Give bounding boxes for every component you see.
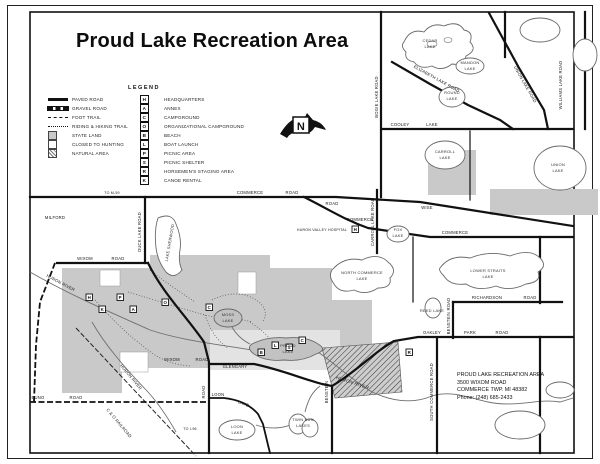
- legend-swatch-icon: [48, 140, 68, 149]
- legend-item-label: FOOT TRAIL: [72, 115, 101, 120]
- map-label: ROUND: [444, 90, 460, 95]
- svg-text:L: L: [274, 343, 277, 348]
- legend-item: CLOSED TO HUNTING: [48, 140, 128, 149]
- map-label: TO M-59: [104, 191, 120, 195]
- legend-item: L BOAT LAUNCH: [140, 140, 244, 149]
- legend-heading: LEGEND: [48, 85, 240, 91]
- map-label: REED LAKE: [420, 308, 444, 313]
- map-label: HURON VALLEY HOSPITAL: [297, 228, 347, 232]
- contact-line: PROUD LAKE RECREATION AREA: [457, 372, 544, 380]
- map-label: PARK: [464, 330, 476, 335]
- map-label: LAKES: [296, 423, 310, 428]
- legend-swatch-icon: [48, 107, 68, 110]
- map-label: CARROLL: [435, 149, 456, 154]
- legend-item-label: STATE LAND: [72, 133, 102, 138]
- map-label: COMMERCE: [442, 230, 469, 235]
- legend-line-items: PAVED ROAD GRAVEL ROAD FOOT TRAIL: [48, 95, 128, 185]
- legend-item: PAVED ROAD: [48, 95, 128, 104]
- facility-icon: P: [117, 294, 124, 301]
- facility-symbol-icon: C: [140, 113, 160, 122]
- svg-text:O: O: [163, 300, 167, 305]
- legend-swatch-icon: [48, 149, 68, 158]
- facility-icon: C: [299, 337, 306, 344]
- map-label: LAKE: [282, 349, 293, 354]
- svg-text:H: H: [354, 227, 357, 232]
- legend-swatch-icon: [48, 126, 68, 127]
- map-label: BENSTEIN ROAD: [446, 298, 451, 335]
- legend-item-label: HORSEMEN'S STAGING AREA: [164, 169, 234, 174]
- legend-item-label: PICNIC AREA: [164, 151, 195, 156]
- facility-icon: A: [130, 306, 137, 313]
- map-label: MILFORD: [45, 215, 65, 220]
- map-label: UNION: [551, 162, 565, 167]
- legend-swatch-icon: [48, 98, 68, 101]
- legend-item-label: ANNEX: [164, 106, 181, 111]
- legend-item: K CANOE RENTAL: [140, 176, 244, 185]
- legend-item-label: BEACH: [164, 133, 181, 138]
- map-label: LAKE: [392, 233, 403, 238]
- legend-item: H HEADQUARTERS: [140, 95, 244, 104]
- map-label: LAKE: [424, 44, 435, 49]
- contact-line: Phone: (248) 685-2433: [457, 395, 544, 403]
- map-label: BUNO: [32, 395, 45, 400]
- map-label: WIXOM: [77, 256, 93, 261]
- facility-icon: R: [406, 349, 413, 356]
- map-label: ROAD: [70, 395, 83, 400]
- map-label: RICHARDSON: [472, 295, 502, 300]
- map-label: WILLIAMS LAKE ROAD: [558, 61, 563, 110]
- legend-swatch-icon: [48, 117, 68, 118]
- map-label: LAKE: [439, 155, 450, 160]
- legend-item: FOOT TRAIL: [48, 113, 128, 122]
- map-label: ROAD: [201, 386, 206, 399]
- map-label: LAKE: [237, 399, 250, 408]
- legend-item-label: CLOSED TO HUNTING: [72, 142, 124, 147]
- map-label: ROAD: [524, 295, 537, 300]
- map-label: LAKE: [552, 168, 563, 173]
- legend-item-label: BOAT LAUNCH: [164, 142, 198, 147]
- facility-icon: C: [206, 304, 213, 311]
- map-label: OAKLEY: [423, 330, 441, 335]
- map-label: ROAD: [286, 190, 299, 195]
- facility-icon: B: [258, 349, 265, 356]
- facility-icon: L: [272, 342, 279, 349]
- contact-line: COMMERCE TWP. MI 48382: [457, 387, 544, 395]
- legend-item-label: HEADQUARTERS: [164, 97, 205, 102]
- map-label: LAKE: [426, 122, 438, 127]
- map-label: LAKE: [464, 66, 475, 71]
- map-label: MANDON: [461, 60, 480, 65]
- facility-icon: K: [99, 306, 106, 313]
- facility-symbol-icon: K: [140, 176, 160, 185]
- legend-item: R HORSEMEN'S STAGING AREA: [140, 167, 244, 176]
- map-label: MOSS: [222, 312, 235, 317]
- legend-item-label: NATURAL AREA: [72, 151, 109, 156]
- legend-item: C CAMPGROUND: [140, 113, 244, 122]
- legend-item: STATE LAND: [48, 131, 128, 140]
- map-label: TO I-96: [183, 427, 197, 431]
- legend: LEGEND PAVED ROAD GRAVEL ROAD: [48, 85, 240, 185]
- glengary-benstein-road: [209, 364, 332, 453]
- page-title: Proud Lake Recreation Area: [76, 30, 348, 53]
- map-label: LAKE: [356, 276, 367, 281]
- map-label: LOON: [231, 424, 243, 429]
- facility-symbol-icon: R: [140, 167, 160, 176]
- map-label: UNION LAKE ROAD: [513, 65, 538, 104]
- facility-symbol-icon: O: [140, 122, 160, 131]
- map-label: ROAD: [496, 330, 509, 335]
- legend-item: O ORGANIZATIONAL CAMPGROUND: [140, 122, 244, 131]
- facility-symbol-icon: B: [140, 131, 160, 140]
- natural-area-region: [322, 342, 402, 398]
- facility-symbol-icon: H: [140, 95, 160, 104]
- facility-icon: H: [86, 294, 93, 301]
- legend-item: B BEACH: [140, 131, 244, 140]
- legend-item-label: GRAVEL ROAD: [72, 106, 107, 111]
- map-label: WISE: [421, 205, 433, 210]
- map-label: LAKE: [222, 318, 233, 323]
- facility-icon: H: [352, 226, 359, 233]
- map-label: WIXOM: [164, 357, 180, 362]
- legend-item: NATURAL AREA: [48, 149, 128, 158]
- svg-text:B: B: [260, 350, 263, 355]
- contact-line: 3500 WIXOM ROAD: [457, 380, 544, 388]
- legend-item: GRAVEL ROAD: [48, 104, 128, 113]
- map-label: CARROLL LAKE ROAD: [370, 198, 375, 246]
- map-label: LAKE: [482, 274, 493, 279]
- map-label: SOUTH COMMERCE ROAD: [429, 363, 434, 421]
- legend-item: RIDING & HIKING TRAIL: [48, 122, 128, 131]
- legend-item-label: ORGANIZATIONAL CAMPGROUND: [164, 124, 244, 129]
- legend-item: A ANNEX: [140, 104, 244, 113]
- map-label: LAKE: [446, 96, 457, 101]
- legend-facility-items: H HEADQUARTERS A ANNEX C CAMPGROUND: [140, 95, 244, 185]
- legend-item-label: CANOE RENTAL: [164, 178, 202, 183]
- contact-block: PROUD LAKE RECREATION AREA3500 WIXOM ROA…: [457, 372, 544, 402]
- map-label: COMMERCE: [237, 190, 264, 195]
- map-label: TWIN SUN: [292, 417, 313, 422]
- north-arrow: N: [280, 113, 326, 138]
- map-label: LAKE: [231, 430, 242, 435]
- legend-item-label: CAMPGROUND: [164, 115, 200, 120]
- facility-symbol-icon: A: [140, 104, 160, 113]
- map-label: DUCK LAKE ROAD: [137, 212, 142, 252]
- map-label: COOLEY: [391, 122, 410, 127]
- north-label: N: [297, 121, 305, 133]
- legend-item-label: PAVED ROAD: [72, 97, 103, 102]
- svg-text:P: P: [119, 295, 122, 300]
- map-label: NORTH COMMERCE: [341, 270, 383, 275]
- map-label: ROAD: [112, 256, 125, 261]
- legend-item: S PICNIC SHELTER: [140, 158, 244, 167]
- map-label: GLENGARY: [223, 364, 248, 369]
- map-label: BENSTEIN: [324, 381, 329, 404]
- map-label: ROAD: [326, 201, 339, 206]
- legend-item-label: PICNIC SHELTER: [164, 160, 205, 165]
- facility-symbol-icon: S: [140, 158, 160, 167]
- map-label: FOX: [394, 227, 403, 232]
- map-label: CEDAR: [422, 38, 437, 43]
- map-label: BOGIE LAKE ROAD: [374, 76, 379, 117]
- legend-swatch-icon: [48, 131, 68, 140]
- facility-icon: O: [162, 299, 169, 306]
- facility-symbol-icon: P: [140, 149, 160, 158]
- map-label: ROAD: [196, 357, 209, 362]
- svg-text:H: H: [88, 295, 91, 300]
- facility-symbol-icon: L: [140, 140, 160, 149]
- map-label: LOWER STRAITS: [470, 268, 505, 273]
- map-label: PROUD: [280, 343, 295, 348]
- legend-item: P PICNIC AREA: [140, 149, 244, 158]
- legend-item-label: RIDING & HIKING TRAIL: [72, 124, 128, 129]
- map-label: C & O RAILROAD: [105, 407, 132, 438]
- map-label: LOON: [212, 392, 225, 397]
- map-page: N HKPAOCBLSCRH MILFORDTO M-59DUCK LAKE R…: [0, 0, 600, 464]
